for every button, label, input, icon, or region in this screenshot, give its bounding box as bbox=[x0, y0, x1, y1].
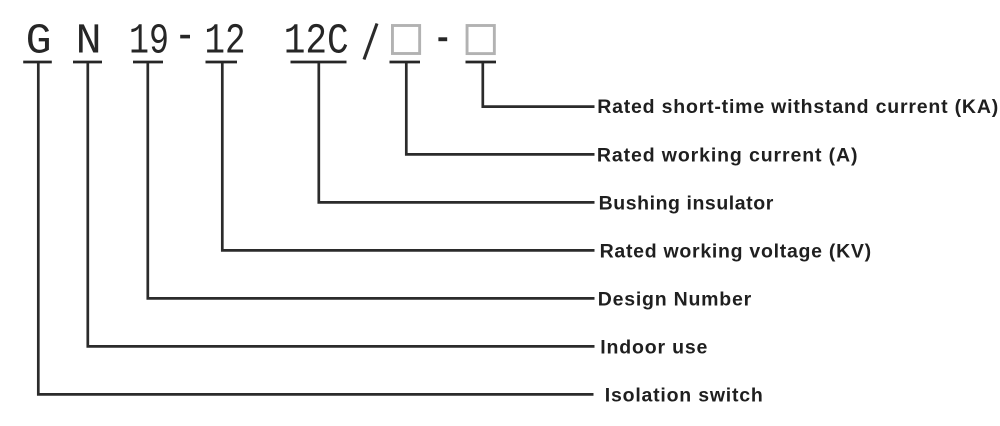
svg-text:Design Number: Design Number bbox=[598, 289, 752, 311]
svg-text:Isolation switch: Isolation switch bbox=[605, 385, 763, 407]
svg-text:Rated working voltage (KV): Rated working voltage (KV) bbox=[600, 241, 872, 263]
svg-text:Indoor use: Indoor use bbox=[600, 337, 707, 359]
svg-text:Rated working current (A): Rated working current (A) bbox=[597, 145, 858, 167]
svg-text:N: N bbox=[76, 18, 102, 66]
svg-text:G: G bbox=[26, 18, 52, 66]
svg-text:12: 12 bbox=[205, 18, 246, 66]
svg-text:Bushing insulator: Bushing insulator bbox=[599, 193, 774, 215]
svg-text:12C: 12C bbox=[284, 18, 349, 66]
svg-text:19: 19 bbox=[129, 18, 169, 66]
svg-text:Rated short-time withstand cur: Rated short-time withstand current (KA) bbox=[597, 96, 998, 118]
